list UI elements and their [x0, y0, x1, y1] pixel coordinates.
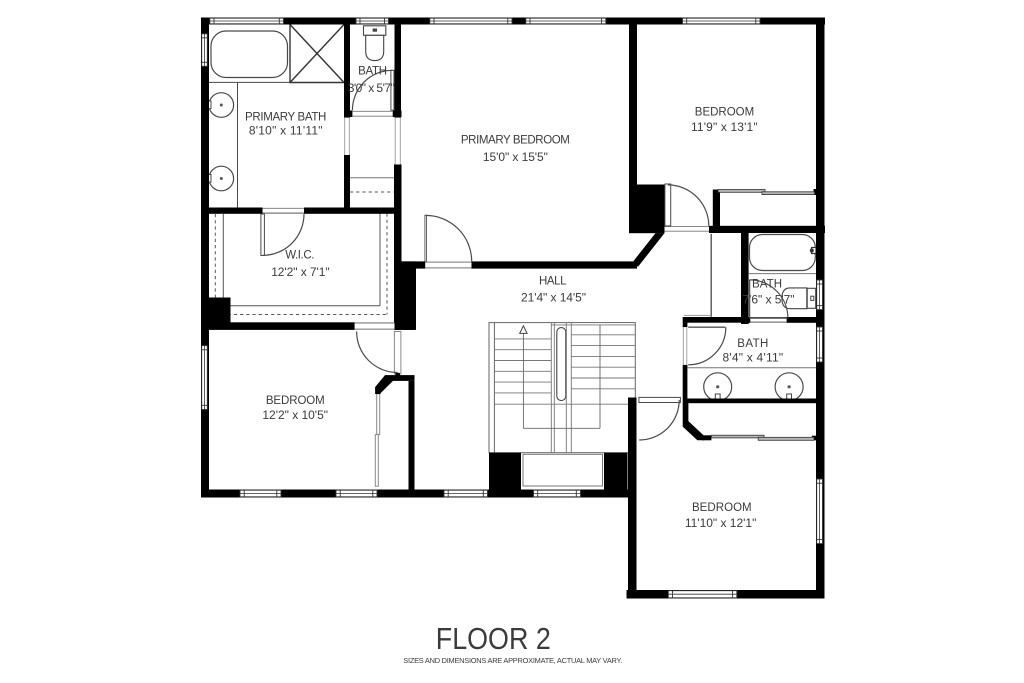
svg-text:FLOOR 2: FLOOR 2 [436, 621, 551, 656]
svg-text:BATH: BATH [752, 278, 782, 290]
svg-text:W.I.C.: W.I.C. [285, 249, 314, 261]
svg-text:7'6" x 5'7": 7'6" x 5'7" [743, 293, 795, 307]
svg-text:BEDROOM: BEDROOM [695, 107, 754, 119]
svg-text:PRIMARY BEDROOM: PRIMARY BEDROOM [461, 134, 570, 146]
svg-text:8'4" x 4'11": 8'4" x 4'11" [723, 351, 784, 365]
svg-text:BATH: BATH [358, 65, 387, 77]
svg-text:3'0" x 5'7": 3'0" x 5'7" [348, 81, 395, 95]
svg-text:PRIMARY BATH: PRIMARY BATH [245, 111, 326, 123]
svg-text:11'10" x 12'1": 11'10" x 12'1" [685, 516, 757, 530]
svg-text:SIZES AND DIMENSIONS ARE APPRO: SIZES AND DIMENSIONS ARE APPROXIMATE, AC… [403, 656, 622, 665]
svg-text:11'9" x 13'1": 11'9" x 13'1" [691, 120, 758, 134]
svg-text:BEDROOM: BEDROOM [692, 502, 752, 514]
svg-text:15'0" x 15'5": 15'0" x 15'5" [483, 150, 548, 164]
svg-text:12'2" x 10'5": 12'2" x 10'5" [262, 408, 328, 422]
svg-text:HALL: HALL [539, 276, 567, 288]
svg-text:BATH: BATH [737, 338, 768, 350]
svg-text:8'10" x 11'11": 8'10" x 11'11" [249, 124, 323, 138]
svg-text:21'4" x 14'5": 21'4" x 14'5" [521, 291, 586, 305]
svg-text:BEDROOM: BEDROOM [266, 395, 325, 407]
svg-text:12'2" x 7'1": 12'2" x 7'1" [271, 265, 329, 279]
